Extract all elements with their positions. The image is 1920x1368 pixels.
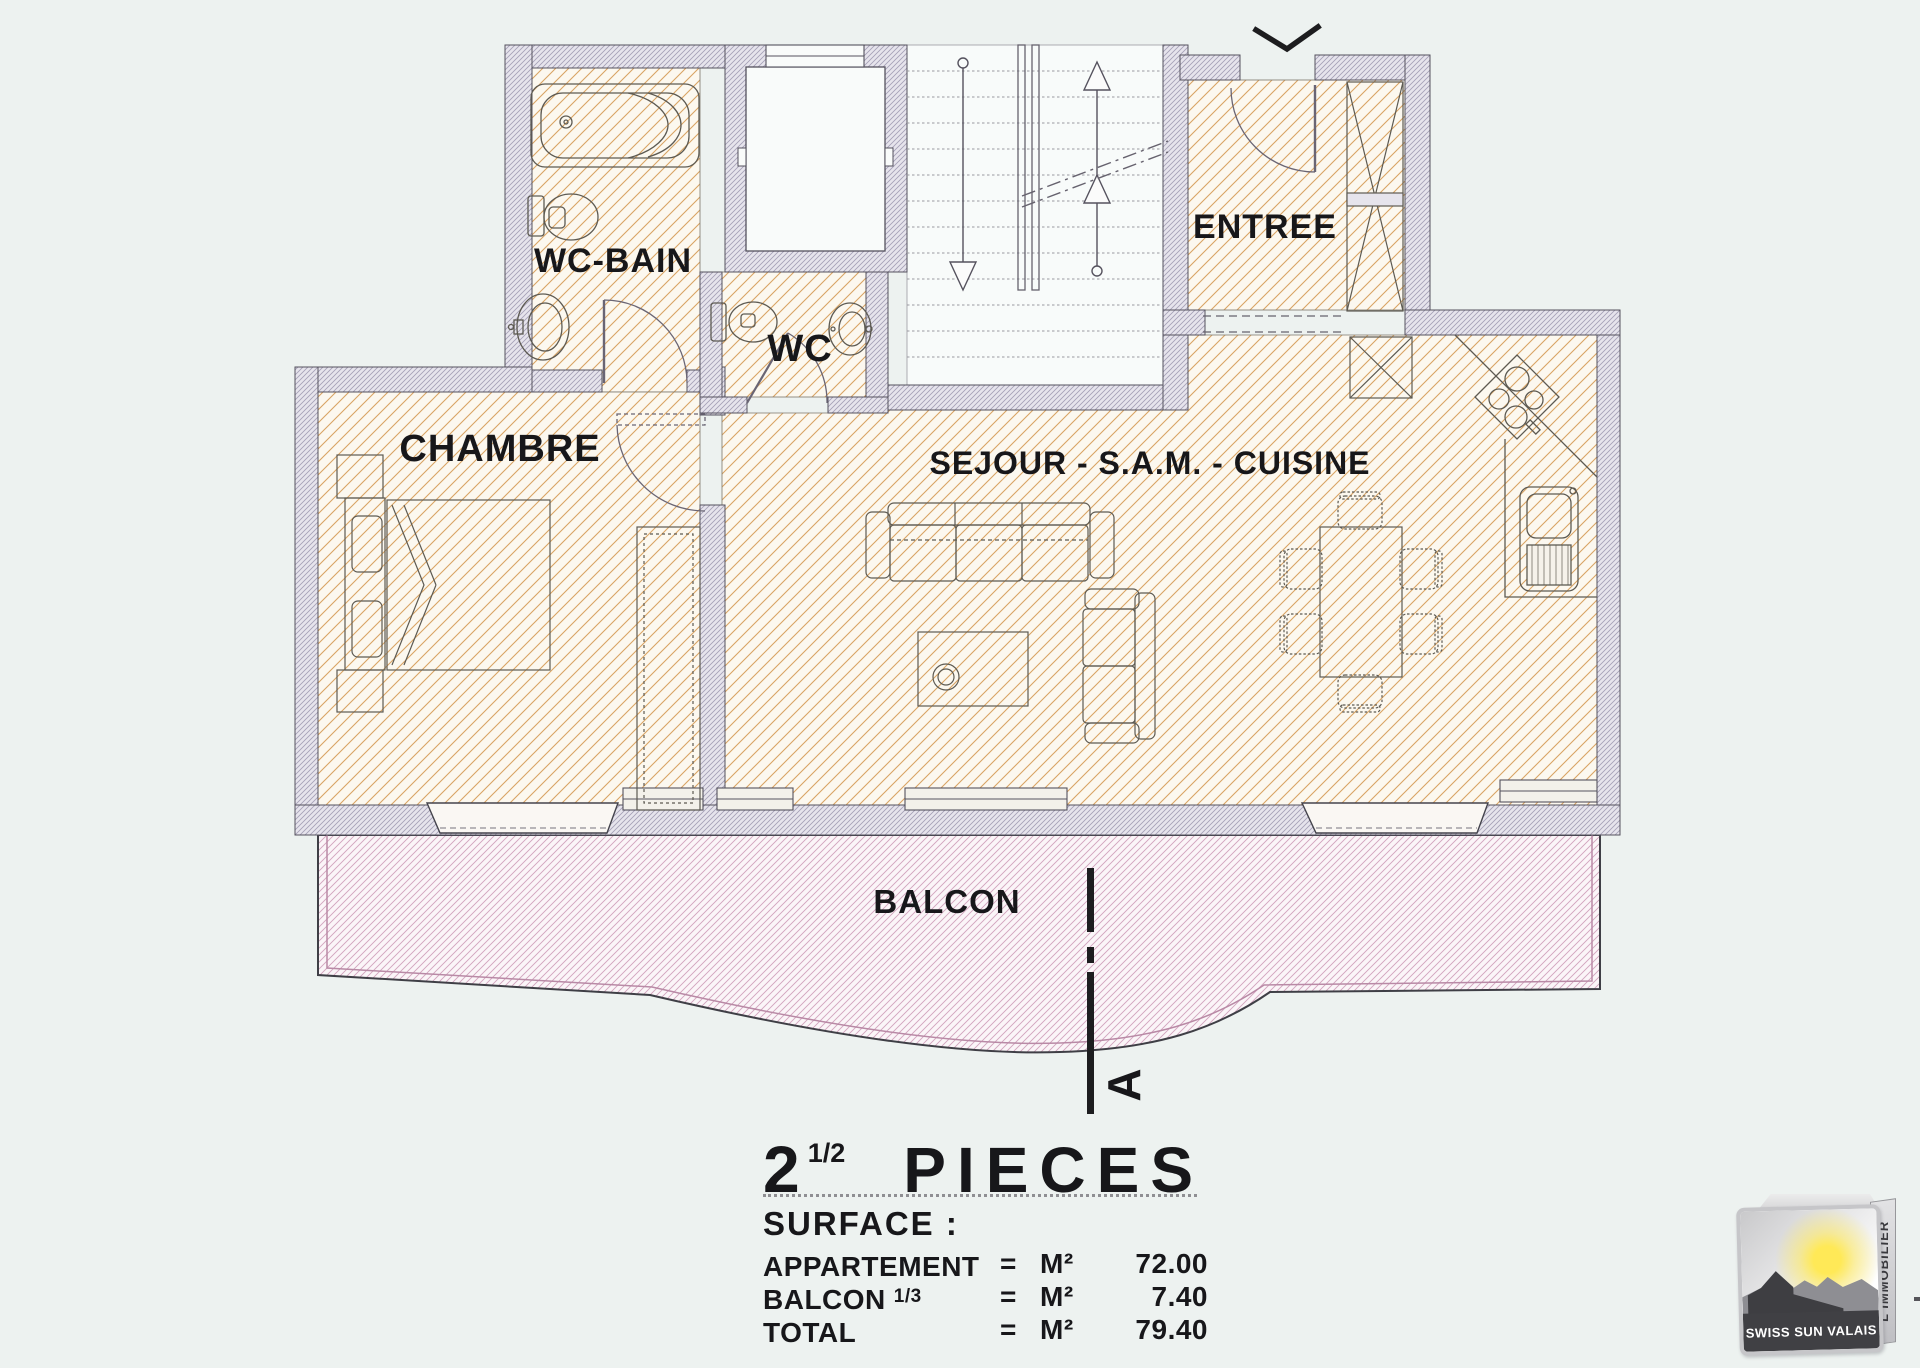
window-sill	[623, 788, 703, 810]
window-sill	[905, 788, 1067, 810]
label-wc: WC	[767, 328, 832, 370]
label-chambre: CHAMBRE	[399, 428, 600, 470]
label-balcon: BALCON	[873, 883, 1020, 920]
label-sejour: SEJOUR - S.A.M. - CUISINE	[929, 445, 1370, 481]
wall-entree-stub	[1163, 310, 1205, 335]
logo-brand-text: SWISS SUN VALAIS	[1746, 1322, 1878, 1340]
entry-chevron-icon	[1256, 27, 1318, 49]
surface-heading: SURFACE :	[763, 1205, 1211, 1243]
row-equals: =	[1000, 1282, 1040, 1315]
summary-block: 21/2PIECES SURFACE : APPARTEMENT = M² 72…	[763, 1118, 1211, 1348]
wall-bedroom-right-lower	[700, 505, 725, 805]
stairwell-floor	[907, 45, 1163, 385]
section-marker-label: A	[1098, 1068, 1150, 1101]
row-unit: M²	[1040, 1282, 1100, 1315]
table-row: TOTAL = M² 79.40	[763, 1315, 1208, 1348]
logo-cube-front: SWISS SUN VALAIS	[1736, 1204, 1884, 1356]
surface-table: APPARTEMENT = M² 72.00 BALCON1/3 = M² 7.…	[763, 1249, 1208, 1348]
wall-entree-top-left	[1180, 55, 1240, 80]
row-label: APPARTEMENT	[763, 1251, 980, 1282]
wall-stair-right	[1163, 45, 1188, 410]
unit-title: 21/2PIECES	[763, 1118, 1211, 1192]
wall-kitchen-top	[1405, 310, 1620, 335]
wall-wc-right	[866, 272, 888, 413]
unit-fraction: 1/2	[808, 1138, 846, 1168]
wall-wc-bottom-left	[700, 397, 747, 413]
logo-brand-band: SWISS SUN VALAIS	[1743, 1310, 1880, 1351]
elevator	[738, 45, 893, 251]
page-dash-mark	[1914, 1297, 1920, 1301]
window-sill	[1500, 780, 1597, 802]
wall-hall-top	[532, 370, 602, 392]
wall-stair-bottom	[888, 385, 1188, 410]
row-equals: =	[1000, 1315, 1040, 1348]
row-label: TOTAL	[763, 1317, 856, 1348]
balcony	[318, 835, 1600, 1052]
window-sill	[717, 788, 793, 810]
row-value: 72.00	[1100, 1249, 1208, 1282]
table-row: APPARTEMENT = M² 72.00	[763, 1249, 1208, 1282]
passage-entree-dashed	[1203, 316, 1345, 332]
wall-wc-bottom-right	[828, 397, 888, 413]
row-equals: =	[1000, 1249, 1040, 1282]
row-fraction: 1/3	[894, 1286, 922, 1307]
label-entree: ENTREE	[1193, 208, 1337, 246]
table-row: BALCON1/3 = M² 7.40	[763, 1282, 1208, 1315]
row-value: 7.40	[1100, 1282, 1208, 1315]
wall-right-outer	[1597, 335, 1620, 805]
elevator-cabin	[746, 67, 885, 251]
row-unit: M²	[1040, 1315, 1100, 1348]
wall-door-stub	[687, 370, 700, 392]
wall-left-outer	[295, 367, 318, 835]
unit-count: 2	[763, 1132, 802, 1206]
wall-closet-right	[1405, 55, 1430, 313]
label-wc-bain: WC-BAIN	[534, 242, 692, 280]
row-label: BALCON	[763, 1284, 886, 1315]
wall-wc-left	[700, 272, 722, 413]
row-unit: M²	[1040, 1249, 1100, 1282]
balcony-deck	[318, 835, 1600, 1052]
agency-logo: L'IMMOBILIER SWISS SUN VALAIS	[1738, 1192, 1900, 1354]
row-value: 79.40	[1100, 1315, 1208, 1348]
floor-plan-page: A WC-BAIN WC CHAMBRE SEJOUR - S.A.M. - C…	[0, 0, 1920, 1368]
unit-label: PIECES	[903, 1134, 1204, 1206]
wall-jog	[295, 367, 532, 392]
